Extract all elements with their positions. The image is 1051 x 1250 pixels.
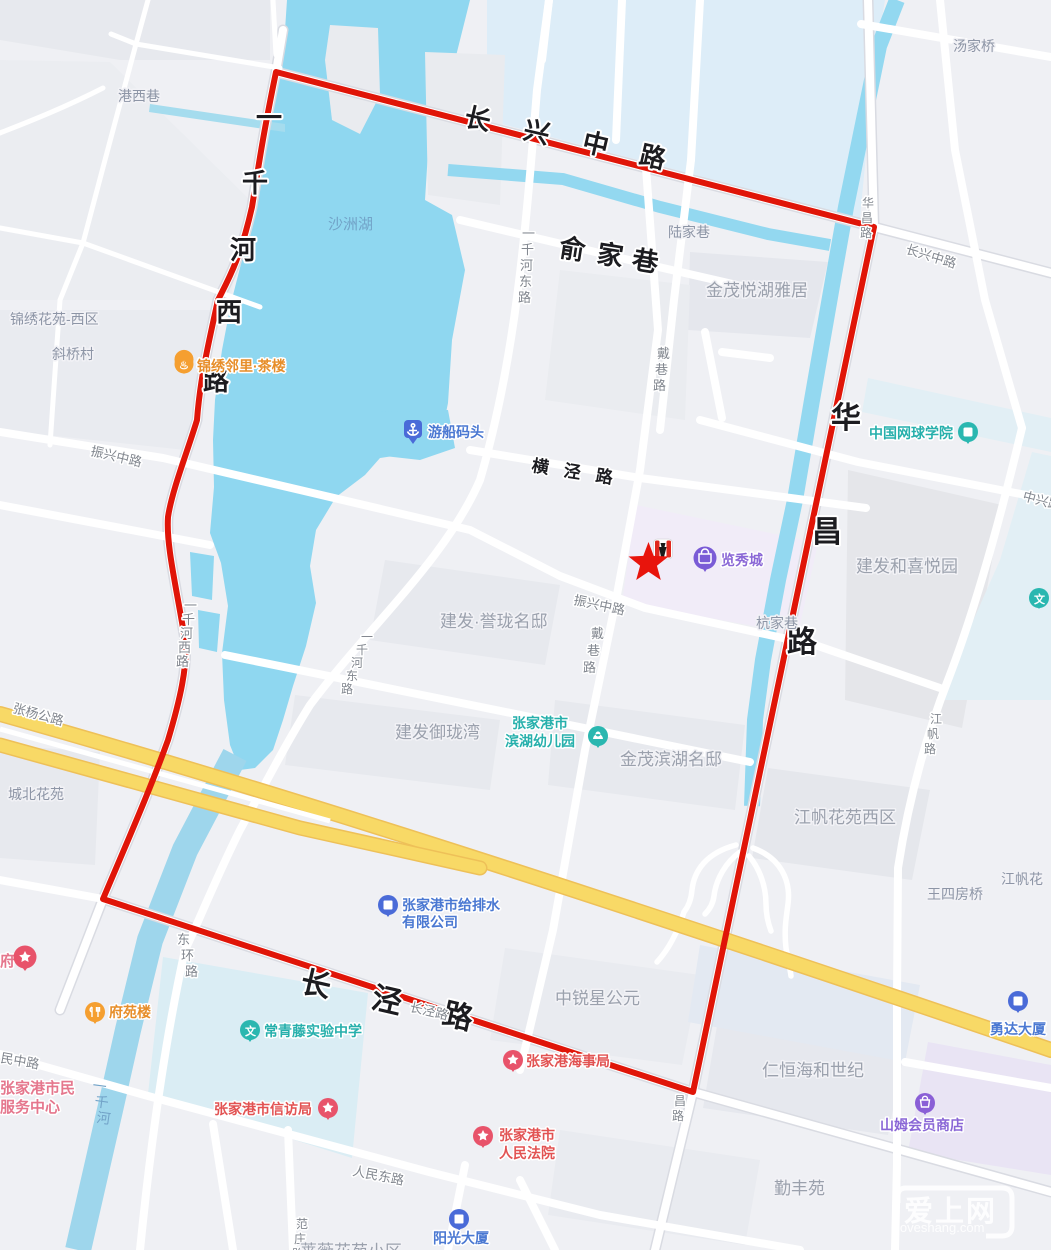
svg-text:游船码头: 游船码头 — [428, 424, 484, 440]
svg-text:戴: 戴 — [591, 626, 604, 641]
svg-text:斜桥村: 斜桥村 — [52, 346, 94, 362]
svg-text:河: 河 — [351, 656, 363, 670]
svg-text:张家港市: 张家港市 — [499, 1127, 555, 1143]
svg-text:巷: 巷 — [655, 362, 668, 377]
svg-text:张家港市: 张家港市 — [512, 715, 568, 731]
svg-text:泾: 泾 — [562, 460, 582, 482]
svg-text:路: 路 — [924, 741, 936, 756]
svg-text:建发·誉珑名邸: 建发·誉珑名邸 — [440, 612, 548, 631]
svg-text:帆: 帆 — [927, 726, 939, 741]
svg-text:戴: 戴 — [657, 346, 670, 361]
svg-text:蔷薇花苑小区: 蔷薇花苑小区 — [300, 1242, 402, 1250]
svg-text:河: 河 — [520, 258, 533, 273]
svg-text:昌: 昌 — [674, 1094, 686, 1108]
svg-text:昌: 昌 — [812, 516, 842, 549]
svg-text:文: 文 — [1034, 592, 1046, 606]
svg-text:王四房桥: 王四房桥 — [927, 886, 983, 902]
svg-text:一: 一 — [184, 598, 197, 613]
svg-text:东: 东 — [177, 932, 190, 947]
svg-text:loveshang.com: loveshang.com — [897, 1220, 984, 1235]
svg-text:路: 路 — [518, 290, 531, 305]
svg-text:环: 环 — [181, 948, 194, 963]
svg-text:千: 千 — [182, 612, 195, 627]
svg-text:有限公司: 有限公司 — [402, 914, 458, 930]
svg-text:♨: ♨ — [179, 360, 189, 372]
svg-text:路: 路 — [583, 660, 596, 675]
svg-text:中锐星公元: 中锐星公元 — [555, 989, 640, 1008]
svg-text:陆家巷: 陆家巷 — [668, 224, 710, 240]
svg-text:东: 东 — [346, 669, 358, 683]
svg-text:勤丰苑: 勤丰苑 — [774, 1179, 825, 1198]
svg-text:勇达大厦: 勇达大厦 — [990, 1021, 1047, 1037]
svg-text:一: 一 — [92, 1077, 108, 1095]
svg-text:江: 江 — [930, 712, 942, 726]
svg-text:张家港市给排水: 张家港市给排水 — [402, 897, 501, 913]
svg-text:金茂滨湖名邸: 金茂滨湖名邸 — [620, 750, 722, 769]
svg-text:览秀城: 览秀城 — [721, 552, 763, 568]
svg-text:千: 千 — [242, 168, 268, 198]
svg-text:范: 范 — [296, 1217, 308, 1231]
svg-text:一: 一 — [522, 226, 535, 241]
svg-text:文: 文 — [245, 1024, 257, 1038]
svg-text:千: 千 — [94, 1093, 110, 1111]
svg-text:路: 路 — [176, 654, 189, 669]
svg-text:千: 千 — [521, 242, 534, 257]
svg-text:山姆会员商店: 山姆会员商店 — [880, 1117, 964, 1133]
svg-text:建发和喜悦园: 建发和喜悦园 — [856, 557, 958, 576]
svg-text:路: 路 — [672, 1108, 684, 1123]
svg-text:府苑楼: 府苑楼 — [109, 1004, 151, 1020]
svg-text:横: 横 — [530, 455, 550, 477]
svg-text:河: 河 — [96, 1109, 112, 1127]
svg-text:江帆花苑西区: 江帆花苑西区 — [794, 808, 896, 827]
svg-text:锦绣邻里·茶楼: 锦绣邻里·茶楼 — [197, 358, 286, 374]
svg-text:河: 河 — [180, 626, 193, 641]
svg-text:金茂悦湖雅居: 金茂悦湖雅居 — [706, 281, 808, 300]
svg-text:路: 路 — [341, 681, 353, 696]
svg-text:华: 华 — [831, 402, 861, 435]
svg-text:一: 一 — [361, 630, 373, 644]
svg-text:张家港市信访局: 张家港市信访局 — [214, 1101, 312, 1117]
svg-text:河: 河 — [230, 235, 256, 265]
svg-text:江帆花: 江帆花 — [1001, 871, 1043, 887]
svg-text:东: 东 — [519, 274, 532, 289]
svg-text:一: 一 — [256, 103, 282, 133]
svg-text:华: 华 — [862, 196, 874, 210]
svg-text:锦绣花苑-西区: 锦绣花苑-西区 — [10, 311, 99, 327]
svg-text:沙洲湖: 沙洲湖 — [328, 216, 373, 233]
svg-text:服务中心: 服务中心 — [0, 1098, 60, 1116]
svg-text:千: 千 — [356, 643, 368, 657]
svg-text:港西巷: 港西巷 — [118, 88, 160, 104]
svg-text:阳光大厦: 阳光大厦 — [433, 1230, 490, 1246]
svg-text:府: 府 — [0, 952, 15, 970]
svg-text:巷: 巷 — [587, 643, 600, 658]
svg-text:滨湖幼儿园: 滨湖幼儿园 — [505, 733, 575, 749]
svg-text:路: 路 — [185, 964, 198, 979]
svg-text:常青藤实验中学: 常青藤实验中学 — [264, 1023, 362, 1039]
svg-text:城北花苑: 城北花苑 — [8, 786, 64, 802]
svg-text:路: 路 — [653, 378, 666, 393]
svg-text:昌: 昌 — [861, 211, 873, 225]
svg-text:中国网球学院: 中国网球学院 — [869, 425, 953, 441]
svg-text:西: 西 — [178, 640, 191, 655]
svg-text:家: 家 — [595, 238, 625, 272]
svg-text:西: 西 — [216, 297, 242, 327]
svg-text:路: 路 — [860, 225, 872, 240]
svg-text:仁恒海和世纪: 仁恒海和世纪 — [762, 1061, 864, 1080]
svg-text:建发御珑湾: 建发御珑湾 — [395, 723, 480, 742]
svg-text:人民法院: 人民法院 — [499, 1145, 555, 1161]
svg-text:张家港海事局: 张家港海事局 — [526, 1053, 610, 1069]
svg-text:杭家巷: 杭家巷 — [756, 615, 798, 631]
svg-text:张家港市民: 张家港市民 — [0, 1079, 75, 1097]
svg-text:汤家桥: 汤家桥 — [953, 38, 995, 54]
